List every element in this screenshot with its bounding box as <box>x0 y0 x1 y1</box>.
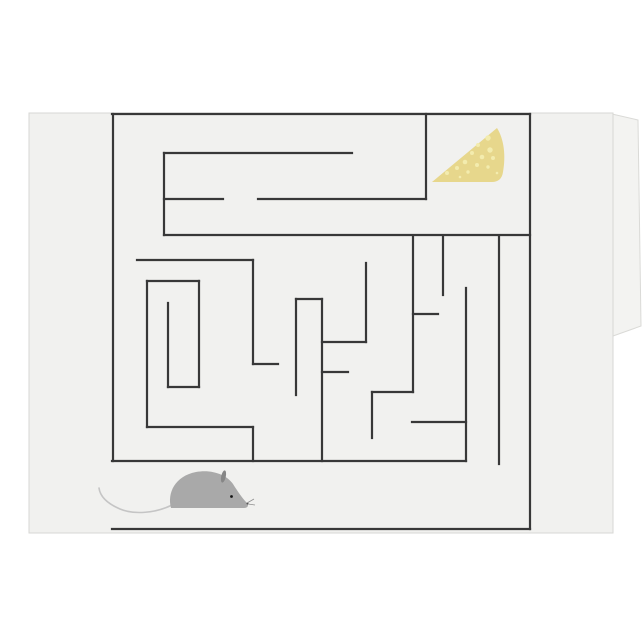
cheese-hole <box>476 143 480 147</box>
cheese-hole <box>487 147 492 152</box>
cheese-hole <box>459 176 462 179</box>
cheese-hole <box>496 172 499 175</box>
cheese-hole <box>470 151 474 155</box>
cheese-hole <box>445 171 449 175</box>
card-mockup-image <box>0 0 644 644</box>
card-back-flap <box>612 114 641 336</box>
greeting-card <box>29 113 641 533</box>
cheese-hole <box>455 166 459 170</box>
maze-card-scene <box>0 0 644 644</box>
cheese-hole <box>480 155 485 160</box>
cheese-hole <box>491 156 495 160</box>
cheese-hole <box>486 165 489 168</box>
cheese-hole <box>475 163 479 167</box>
cheese-hole <box>463 160 468 165</box>
cheese-hole <box>485 135 490 140</box>
cheese-hole <box>466 170 469 173</box>
mouse-eye <box>230 495 233 498</box>
